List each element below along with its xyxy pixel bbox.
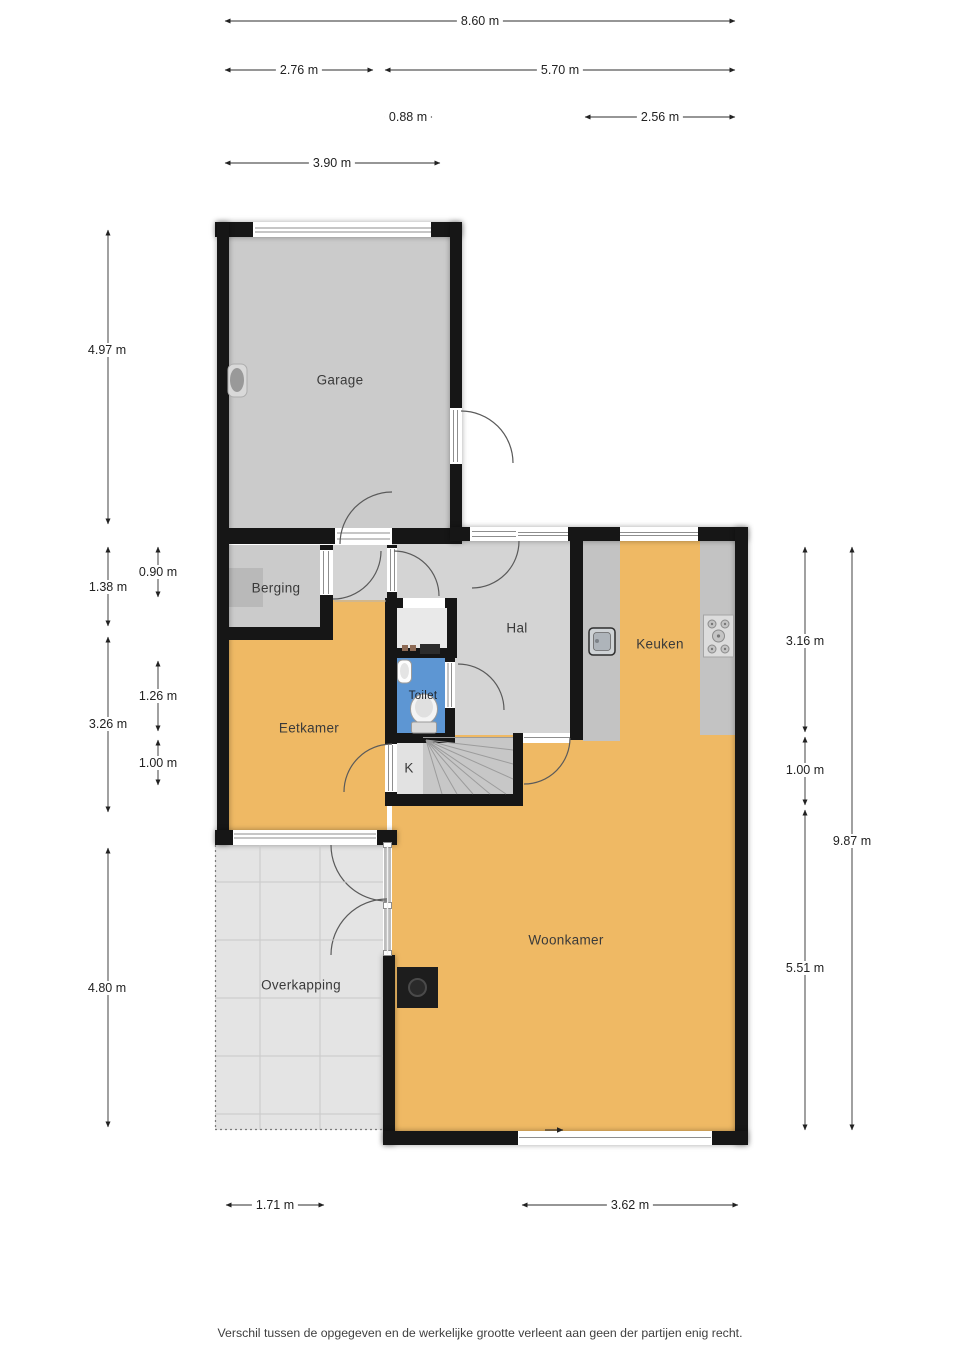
disclaimer-text: Verschil tussen de opgegeven en de werke…: [0, 1326, 960, 1340]
dim-left-4-97: 4.97 m: [84, 343, 130, 357]
dim-bottom-3-62: 3.62 m: [607, 1198, 653, 1212]
dim-left-1-00: 1.00 m: [135, 756, 181, 770]
window-lines: [234, 228, 711, 1138]
fireplace-icon: [409, 979, 426, 996]
room-label-overkapping: Overkapping: [261, 978, 341, 993]
dim-left-1-38: 1.38 m: [85, 580, 131, 594]
room-label-eetkamer: Eetkamer: [279, 721, 339, 736]
hand-basin-icon: [398, 660, 412, 683]
dim-left-1-26: 1.26 m: [135, 689, 181, 703]
dim-top-0-88: 0.88 m: [385, 110, 431, 124]
room-label-hal: Hal: [506, 621, 527, 636]
stairs-treads: [423, 738, 513, 795]
meter-cabinet-items: [402, 644, 440, 654]
boiler-icon: [228, 364, 247, 397]
kitchen-sink-icon: [589, 628, 615, 655]
dim-top-3-90: 3.90 m: [309, 156, 355, 170]
room-label-garage: Garage: [317, 373, 364, 388]
dim-left-4-80: 4.80 m: [84, 981, 130, 995]
room-label-keuken: Keuken: [636, 637, 684, 652]
dim-left-0-90: 0.90 m: [135, 565, 181, 579]
floorplan-page: Garage Berging Hal Toilet Keuken Eetkame…: [0, 0, 960, 1358]
dim-bottom-1-71: 1.71 m: [252, 1198, 298, 1212]
dim-top-2-56: 2.56 m: [637, 110, 683, 124]
cooktop-icon: [704, 615, 734, 657]
room-label-berging: Berging: [252, 581, 301, 596]
door-swing-arcs: [331, 411, 570, 955]
dim-top-2-76: 2.76 m: [276, 63, 322, 77]
dim-right-9-87: 9.87 m: [829, 834, 875, 848]
dim-right-3-16: 3.16 m: [782, 634, 828, 648]
dimension-lines: [108, 21, 852, 1205]
dim-left-3-26: 3.26 m: [85, 717, 131, 731]
dim-right-5-51: 5.51 m: [782, 961, 828, 975]
dim-right-1-00: 1.00 m: [782, 763, 828, 777]
room-label-woonkamer: Woonkamer: [528, 933, 603, 948]
dim-top-8-60: 8.60 m: [457, 14, 503, 28]
room-label-toilet: Toilet: [409, 690, 438, 702]
dim-top-5-70: 5.70 m: [537, 63, 583, 77]
room-label-kast: K: [404, 761, 413, 776]
plan-graphics: [0, 0, 960, 1358]
